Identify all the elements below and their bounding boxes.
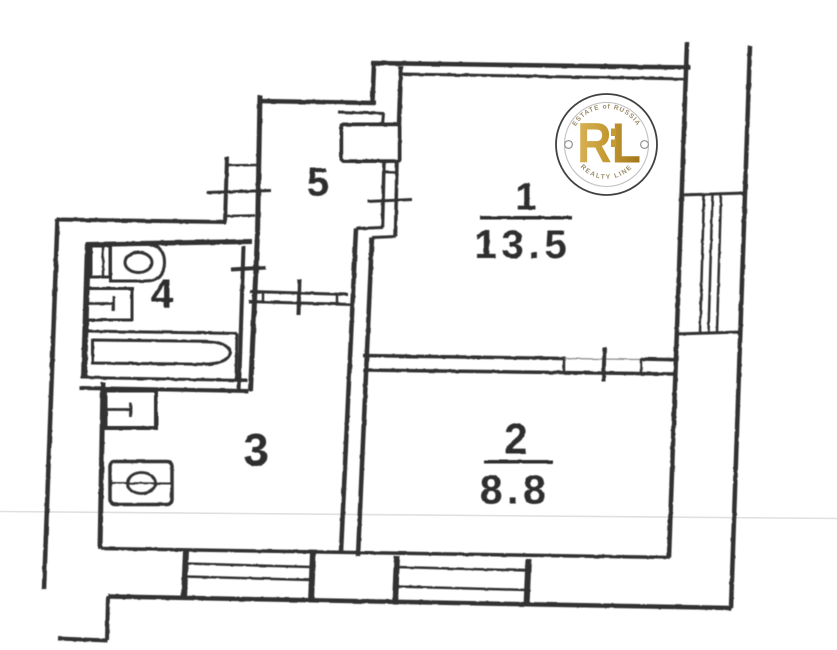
svg-text:1: 1 xyxy=(515,177,536,219)
svg-text:5: 5 xyxy=(307,161,329,205)
svg-text:3: 3 xyxy=(243,425,268,476)
svg-text:4: 4 xyxy=(151,271,174,317)
svg-text:2: 2 xyxy=(504,417,528,464)
svg-text:13.5: 13.5 xyxy=(474,223,571,267)
svg-text:8.8: 8.8 xyxy=(480,467,551,513)
